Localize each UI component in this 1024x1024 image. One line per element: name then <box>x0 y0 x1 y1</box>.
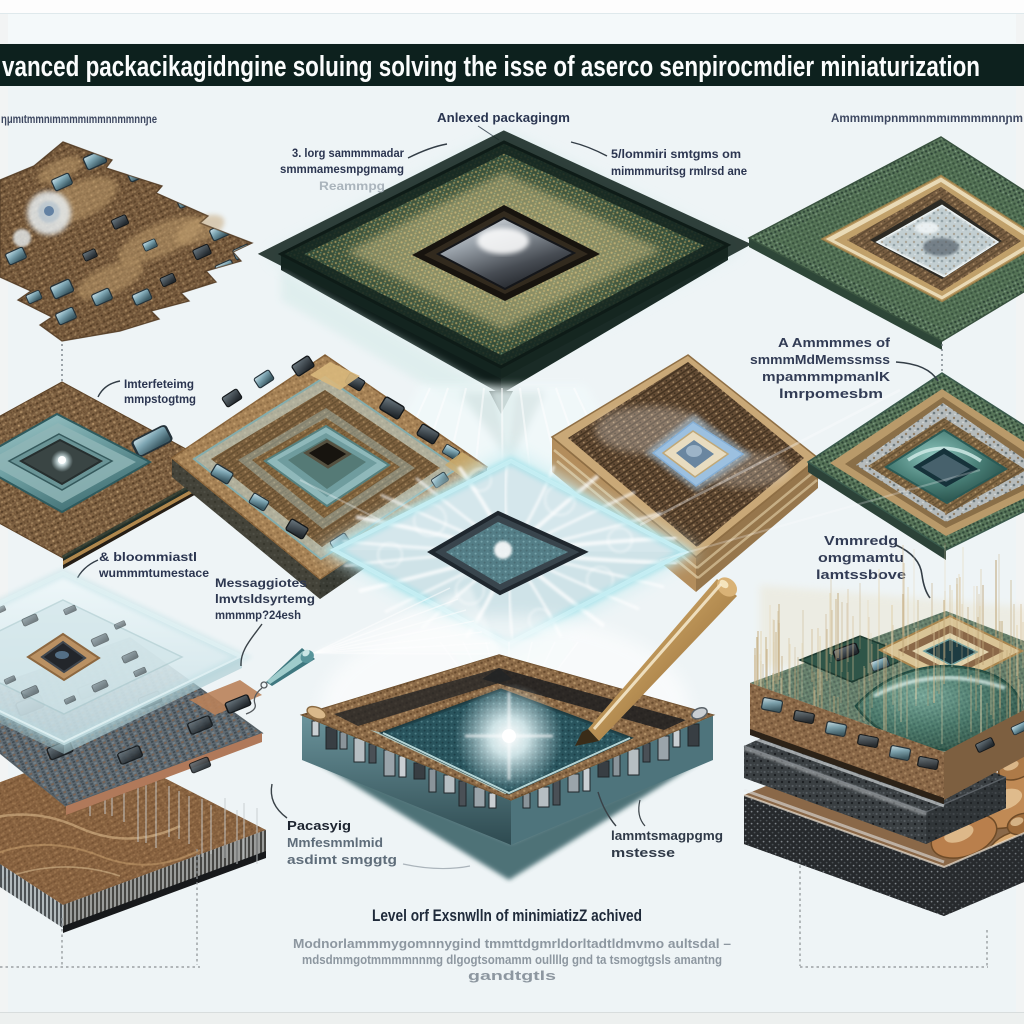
svg-text:mmmmp?24esh: mmmmp?24esh <box>215 608 301 622</box>
svg-text:A Ammmmes of: A Ammmmes of <box>778 336 891 350</box>
svg-text:asdimt smggtg: asdimt smggtg <box>287 853 397 867</box>
svg-text:mmpstogtmg: mmpstogtmg <box>124 392 196 406</box>
svg-text:vanced packacikagidngine solui: vanced packacikagidngine soluing solving… <box>2 51 980 83</box>
svg-text:lmvtsldsyrtemg: lmvtsldsyrtemg <box>215 592 315 606</box>
svg-text:Modnorlammmygomnnygind tmmttdg: Modnorlammmygomnnygind tmmttdgmrldorltad… <box>293 937 731 951</box>
svg-text:wummmtumestace: wummmtumestace <box>98 566 209 580</box>
svg-text:smmmMdMemssmss: smmmMdMemssmss <box>750 353 890 367</box>
svg-text:Anlexed packagingm: Anlexed packagingm <box>437 111 570 125</box>
svg-text:Reammpg: Reammpg <box>319 179 385 193</box>
svg-text:ημmιtmmnιmmmmιmmnnmmnnɲe: ημmιtmmnιmmmmιmmnnmmnnɲe <box>1 114 157 126</box>
svg-text:5/lommiri smtgms om: 5/lommiri smtgms om <box>611 147 741 161</box>
svg-text:mdsdmmgotmmmmnnmg dlgogtsomamm: mdsdmmgotmmmmnnmg dlgogtsomamm oullllg g… <box>302 953 722 967</box>
svg-text:mimmmuritsg rmlrsd ane: mimmmuritsg rmlrsd ane <box>611 164 747 178</box>
svg-text:3. lorg sammmmadar: 3. lorg sammmmadar <box>292 146 404 160</box>
svg-text:mstesse: mstesse <box>611 846 675 860</box>
svg-text:& bloommiastl: & bloommiastl <box>99 550 197 564</box>
svg-text:mpammmpmanlK: mpammmpmanlK <box>762 370 890 384</box>
svg-text:lmrpomesbm: lmrpomesbm <box>779 387 883 401</box>
svg-text:lamtssbove: lamtssbove <box>816 568 906 582</box>
svg-text:Ammmιmpnmmnmmιmmmmnnɲm: Ammmιmpnmmnmmιmmmmnnɲm <box>831 113 1023 125</box>
svg-text:smmmamesmpgmamg: smmmamesmpgmamg <box>280 162 404 176</box>
svg-text:omgmamtu: omgmamtu <box>818 551 904 565</box>
svg-text:Vmmredg: Vmmredg <box>824 534 898 548</box>
svg-text:Mmfesmmlmid: Mmfesmmlmid <box>287 836 383 850</box>
svg-text:Level orf Exsnwlln of minimiat: Level orf Exsnwlln of minimiatizZ achive… <box>372 907 642 925</box>
svg-text:Pacasyig: Pacasyig <box>287 818 351 833</box>
svg-text:gandtgtls: gandtgtls <box>468 969 556 983</box>
svg-text:lammtsmagpgmg: lammtsmagpgmg <box>611 829 723 843</box>
svg-text:Imterfeteimg: Imterfeteimg <box>124 377 194 391</box>
svg-text:Messaggiotes: Messaggiotes <box>215 576 307 590</box>
